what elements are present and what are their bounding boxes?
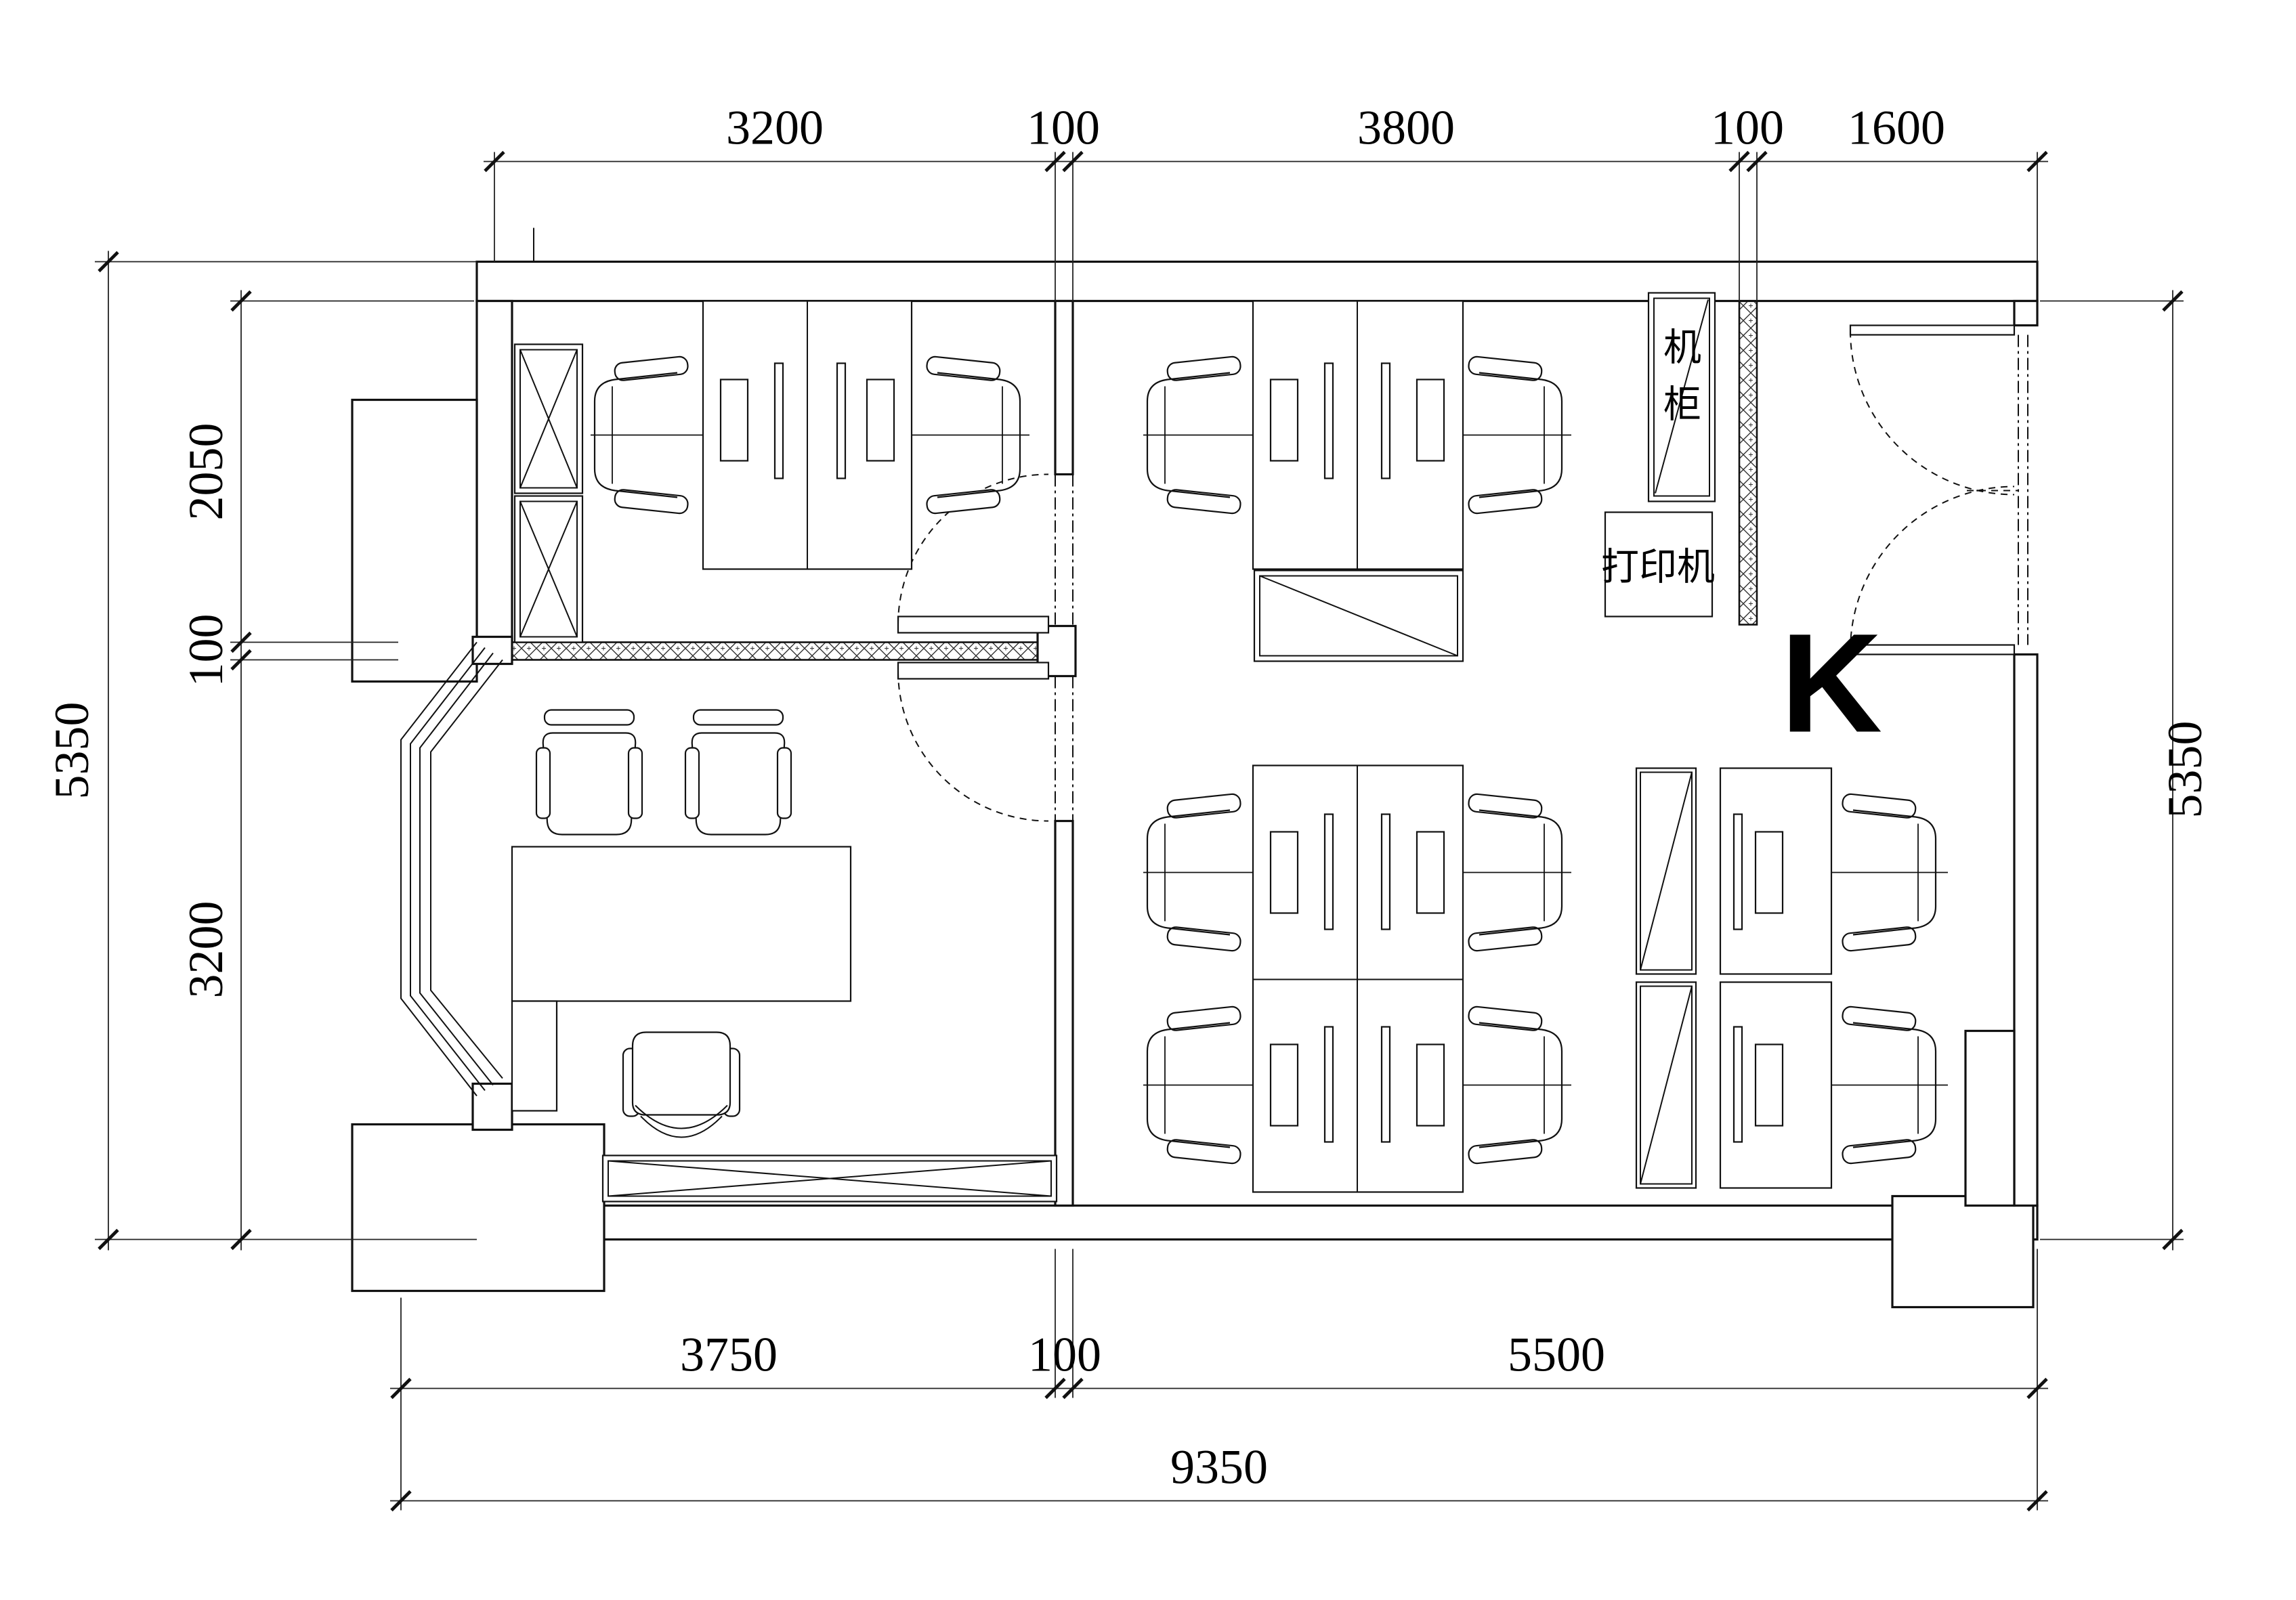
storage-cabinet-x	[515, 345, 582, 494]
exterior-pier-top-left	[352, 400, 477, 682]
monitor	[1756, 832, 1783, 913]
monitor	[721, 380, 748, 461]
keyboard	[1325, 815, 1333, 930]
keyboard	[1382, 815, 1390, 930]
printer-stand: 打印机	[1601, 513, 1715, 617]
bay-window-jamb-bottom	[473, 1084, 512, 1130]
sideboard-diagonal	[1254, 571, 1463, 662]
keyboard	[1382, 364, 1390, 479]
door-leaf-manager-office	[898, 663, 1048, 679]
hatched-wall-horizontal	[512, 643, 1038, 660]
floor-plan-canvas: 机 柜 打印机 K 3200 100 3800 100 1600 5350 20…	[0, 0, 2296, 1600]
manager-desk	[512, 847, 851, 1001]
server-cabinet-label-char: 机	[1663, 328, 1701, 370]
door-leaf-entry-top	[1850, 326, 2014, 335]
dim-label: 100	[179, 614, 233, 687]
dim-label: 5500	[1508, 1328, 1605, 1382]
wall-right	[2014, 655, 2037, 1206]
dim-label: 3750	[680, 1328, 778, 1382]
dim-label: 5350	[2158, 721, 2212, 819]
wall-right-notch	[1965, 1031, 2014, 1206]
keyboard	[1382, 1027, 1390, 1142]
monitor	[1417, 380, 1444, 461]
keyboard	[837, 364, 845, 479]
room-letter: K	[1781, 605, 1882, 762]
bay-window-jamb-top	[473, 637, 512, 664]
dim-label: 1600	[1848, 101, 1945, 155]
dim-label: 100	[1028, 1328, 1101, 1382]
dim-label: 3200	[179, 901, 233, 999]
dim-label: 100	[1711, 101, 1784, 155]
wall-bottom	[512, 1206, 2037, 1240]
keyboard	[1734, 1027, 1742, 1142]
floor-plan-page: 机 柜 打印机 K 3200 100 3800 100 1600 5350 20…	[0, 0, 2296, 1600]
hatched-wall-vertical	[1739, 301, 1757, 625]
dim-label: 100	[1027, 101, 1100, 155]
monitor	[867, 380, 894, 461]
manager-desk-return	[512, 1001, 557, 1111]
keyboard	[1734, 815, 1742, 930]
partition-center-upper	[1055, 301, 1073, 475]
wall-right-stub	[2014, 301, 2037, 326]
monitor	[1271, 380, 1298, 461]
monitor	[1271, 1045, 1298, 1126]
wall-left-upper	[477, 301, 512, 643]
dim-label: 9350	[1170, 1440, 1268, 1494]
keyboard	[775, 364, 783, 479]
paper-background	[0, 1, 2296, 1600]
printer-label: 打印机	[1601, 547, 1715, 589]
monitor	[1271, 832, 1298, 913]
monitor	[1756, 1045, 1783, 1126]
server-cabinet-label-char: 柜	[1663, 385, 1701, 427]
keyboard	[1325, 1027, 1333, 1142]
exterior-pier-bottom-left	[352, 1125, 604, 1291]
monitor	[1417, 1045, 1444, 1126]
door-leaf-small-office	[898, 617, 1048, 633]
storage-cabinet-x	[515, 496, 582, 643]
dim-label: 3800	[1357, 101, 1455, 155]
exterior-pier-bottom-right	[1892, 1196, 2033, 1307]
credenza-x	[603, 1156, 1057, 1202]
wall-top	[477, 262, 2037, 301]
monitor	[1417, 832, 1444, 913]
dim-label: 3200	[726, 101, 824, 155]
dim-label: 5350	[45, 702, 99, 800]
partition-center-lower	[1055, 821, 1073, 1206]
server-cabinet: 机 柜	[1649, 293, 1715, 502]
keyboard	[1325, 364, 1333, 479]
tall-cabinet-diagonal	[1636, 769, 1696, 974]
dim-label: 2050	[179, 423, 233, 521]
tall-cabinet-diagonal	[1636, 982, 1696, 1188]
